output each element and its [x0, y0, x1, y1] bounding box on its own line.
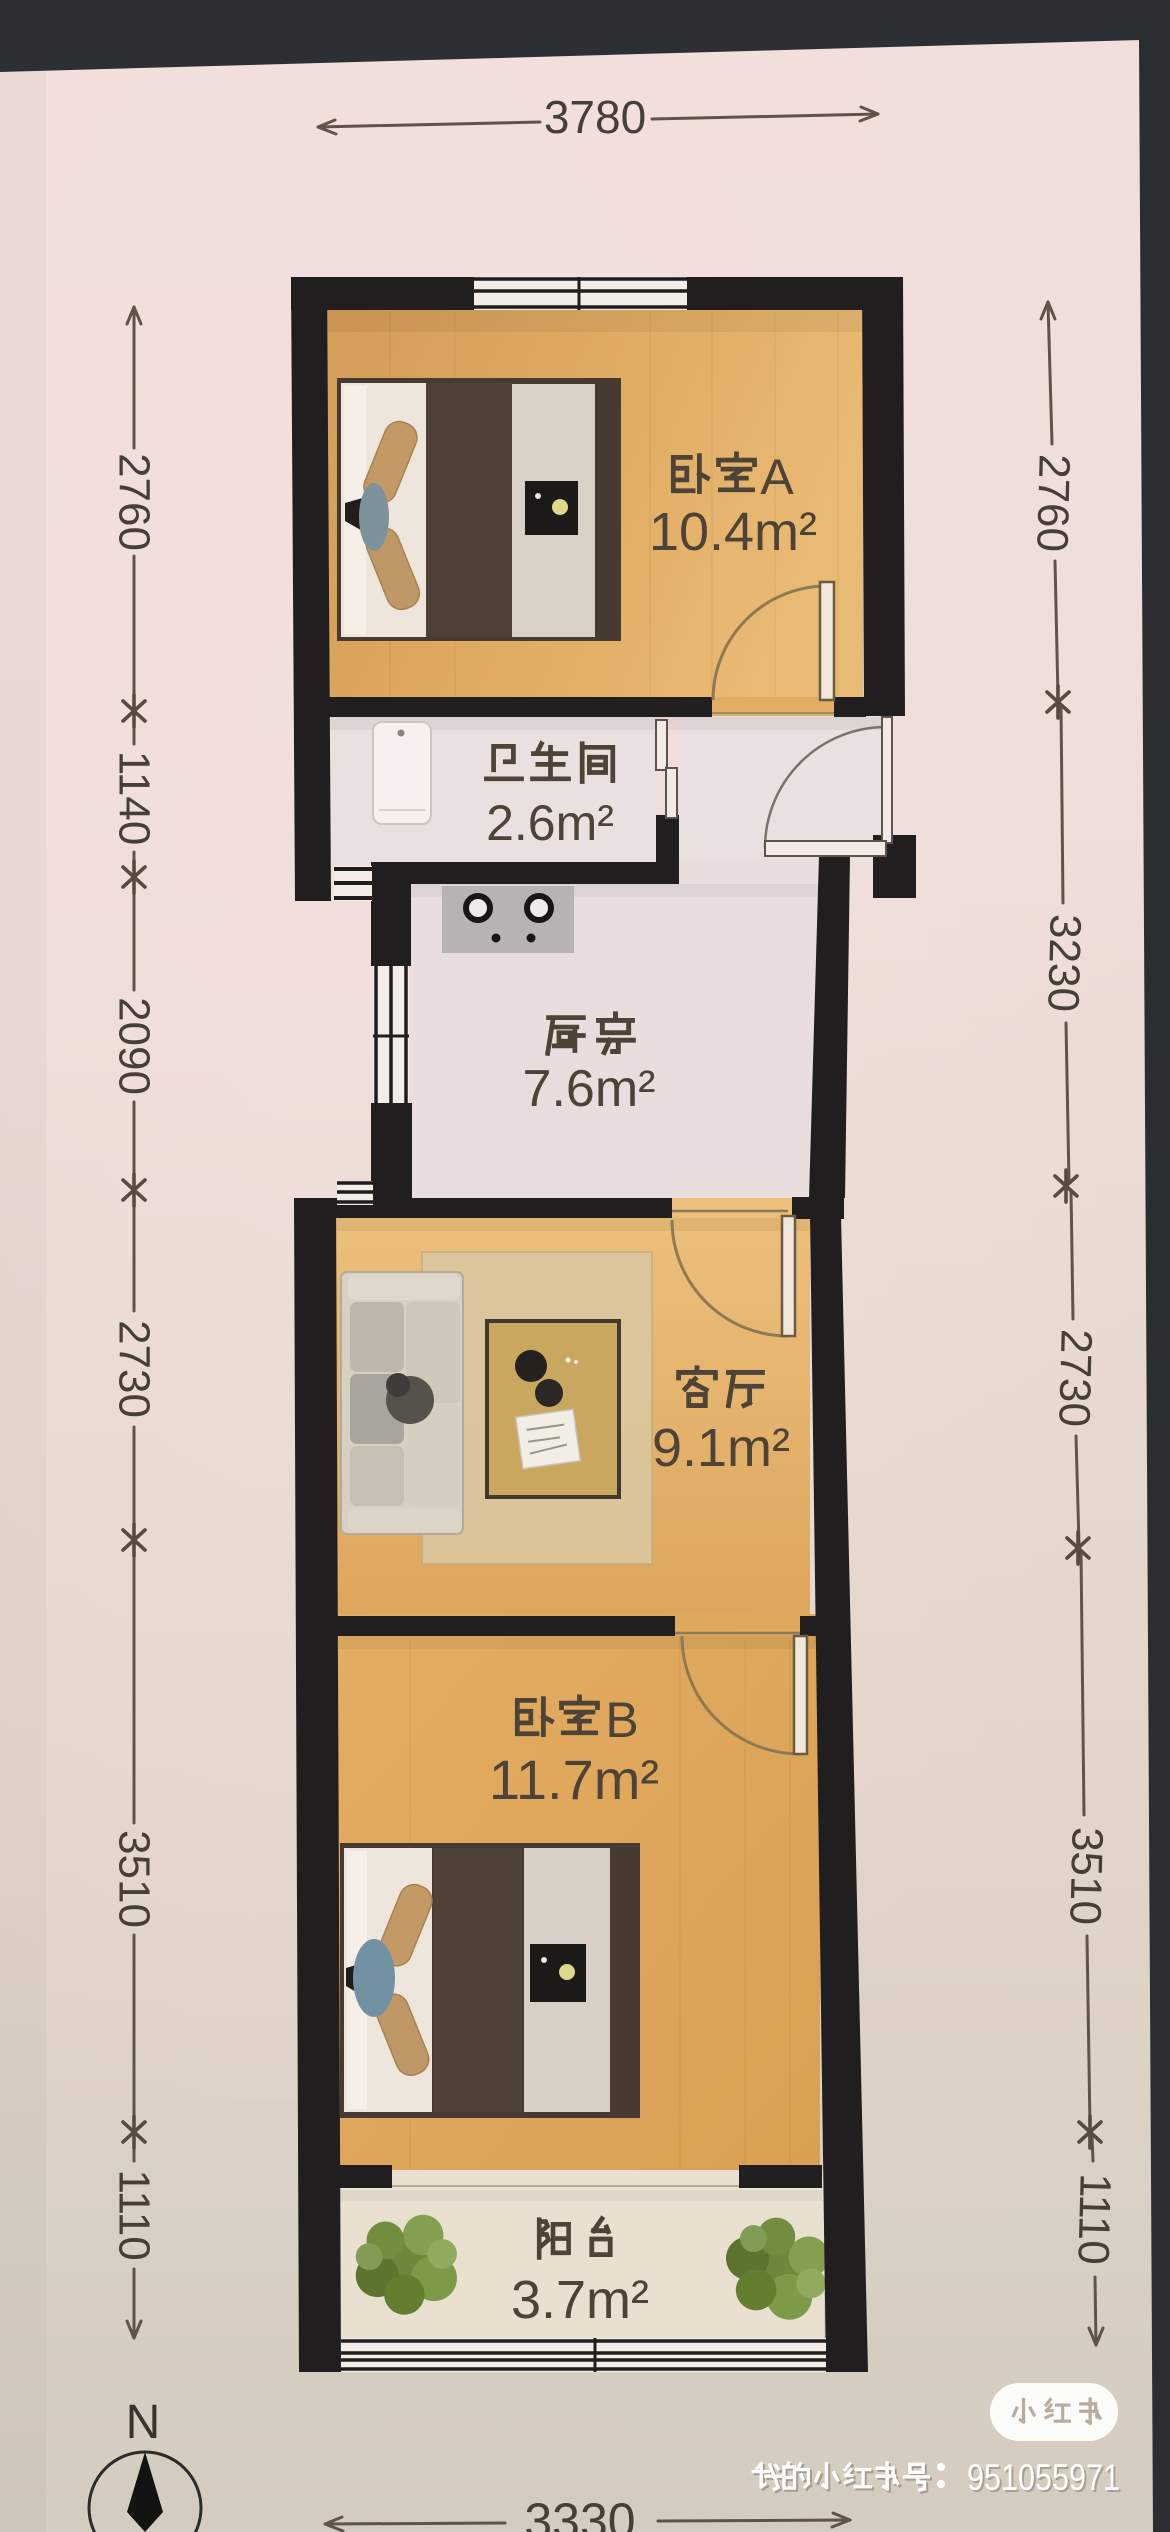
- svg-text:3510: 3510: [110, 1830, 159, 1928]
- svg-text:2.6m²: 2.6m²: [486, 795, 614, 851]
- svg-text:1140: 1140: [110, 751, 159, 846]
- svg-text:9.1m²: 9.1m²: [652, 1418, 790, 1478]
- svg-text:1110: 1110: [110, 2169, 159, 2260]
- svg-text:2090: 2090: [110, 997, 159, 1095]
- svg-text:3780: 3780: [544, 91, 646, 143]
- svg-text:10.4m²: 10.4m²: [649, 502, 817, 562]
- svg-text:3330: 3330: [524, 2493, 635, 2532]
- svg-text:2730: 2730: [110, 1320, 159, 1418]
- svg-text:11.7m²: 11.7m²: [489, 1748, 659, 1811]
- svg-text:2730: 2730: [1049, 1328, 1101, 1427]
- svg-text:2760: 2760: [1027, 453, 1079, 552]
- svg-text:N: N: [126, 2396, 161, 2449]
- svg-text:3.7m²: 3.7m²: [511, 2270, 649, 2330]
- svg-text:A: A: [760, 449, 794, 505]
- svg-text:951055971: 951055971: [967, 2457, 1120, 2498]
- svg-text:2760: 2760: [110, 453, 159, 551]
- svg-text:3230: 3230: [1038, 913, 1090, 1012]
- svg-text:3510: 3510: [1060, 1826, 1112, 1925]
- svg-text:7.6m²: 7.6m²: [523, 1060, 656, 1118]
- svg-text:B: B: [605, 1692, 638, 1748]
- svg-text:1110: 1110: [1068, 2173, 1119, 2266]
